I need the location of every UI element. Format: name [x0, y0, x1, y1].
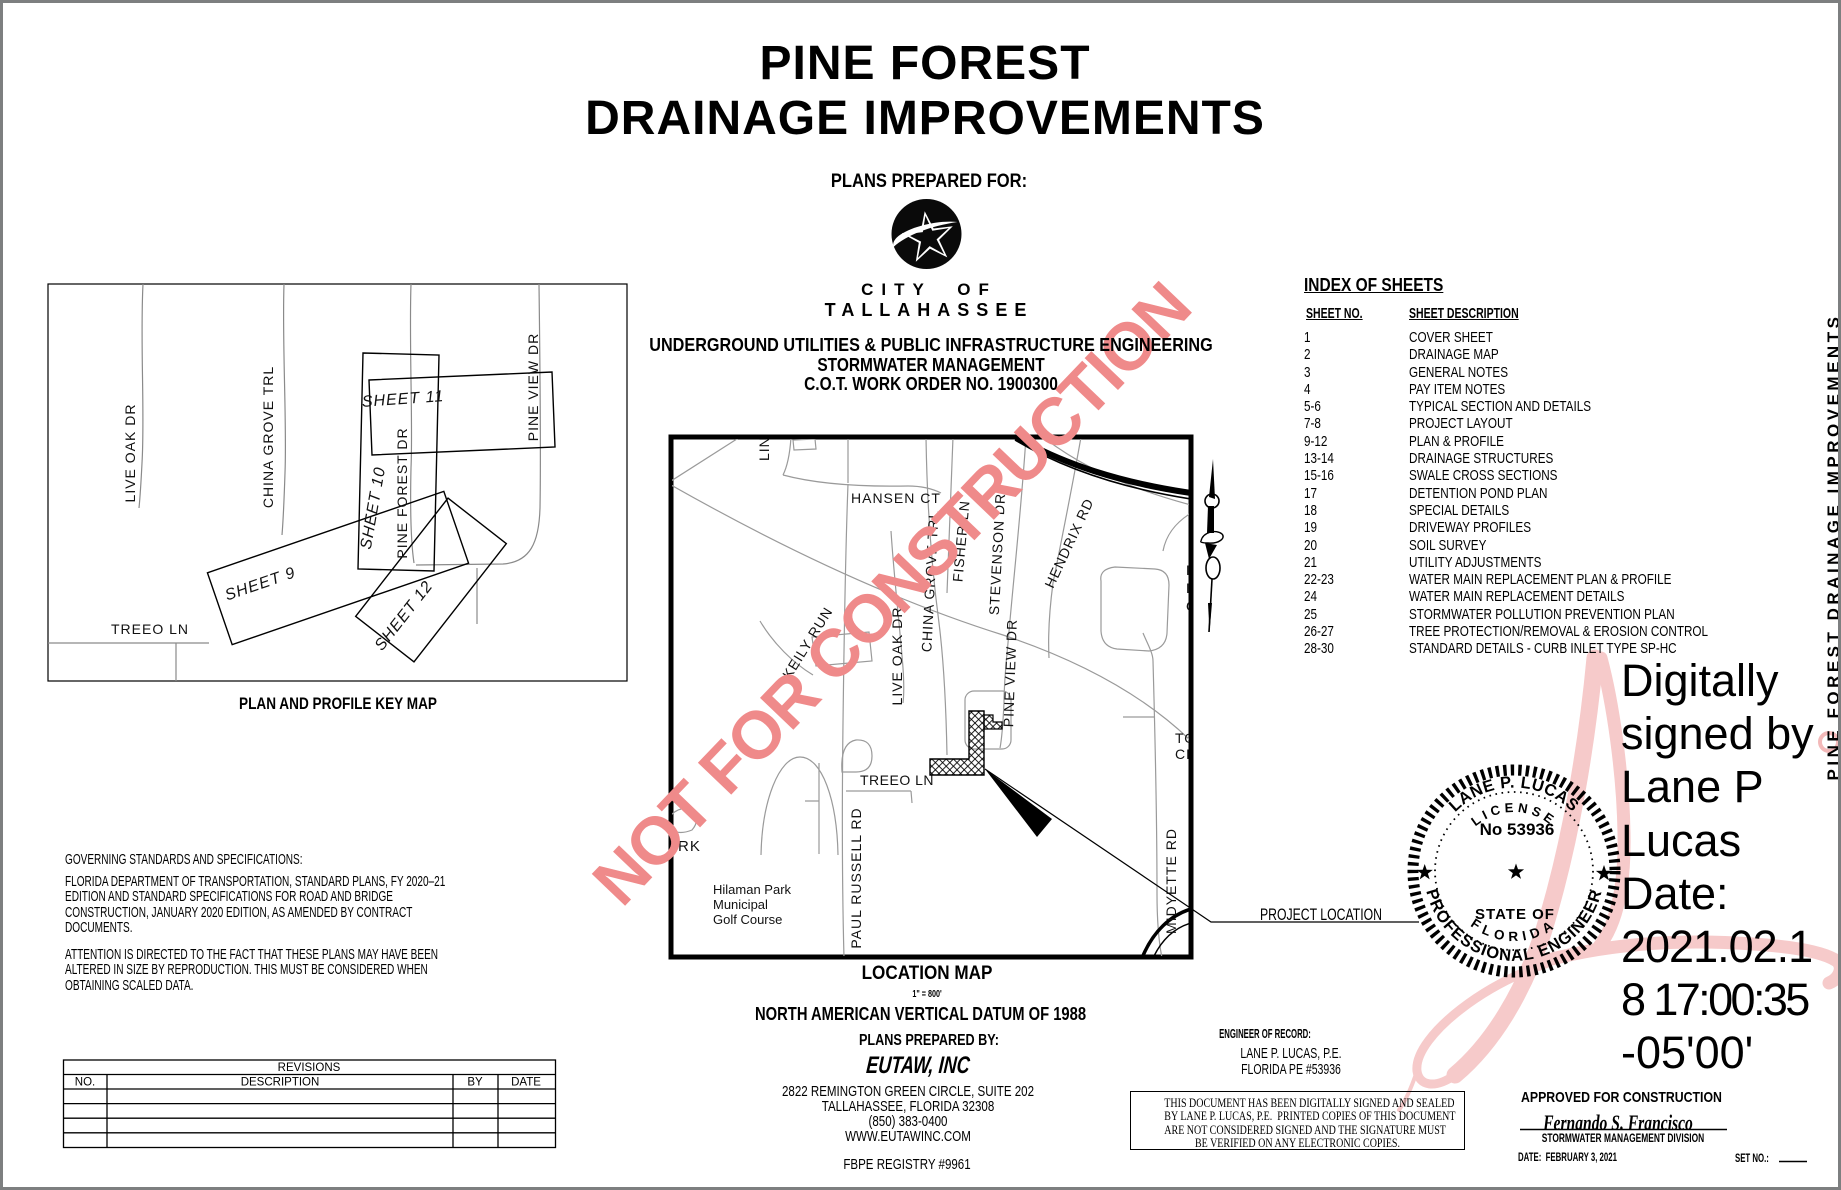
svg-text:Hilaman Park: Hilaman Park [713, 882, 792, 897]
svg-text:MIDYETTE RD: MIDYETTE RD [1163, 828, 1179, 934]
svg-text:PAUL RUSSELL RD: PAUL RUSSELL RD [848, 807, 864, 948]
svg-text:DATE: DATE [511, 1077, 541, 1089]
svg-text:BY: BY [467, 1077, 483, 1089]
svg-text:LIVE OAK DR: LIVE OAK DR [122, 404, 138, 503]
svg-text:No 53936: No 53936 [1480, 820, 1555, 839]
svg-text:REVISIONS: REVISIONS [278, 1062, 341, 1074]
svg-text:SHEET 11: SHEET 11 [361, 388, 444, 411]
svg-text:Golf Course: Golf Course [713, 912, 782, 927]
svg-text:CH: CH [1175, 746, 1197, 762]
svg-text:TREEO LN: TREEO LN [860, 772, 934, 788]
svg-text:SHEET 12: SHEET 12 [372, 578, 437, 654]
svg-text:CHINA GROVE TRL: CHINA GROVE TRL [260, 366, 276, 508]
svg-text:SHEET 9: SHEET 9 [223, 564, 298, 604]
svg-text:PINE VIEW DR: PINE VIEW DR [525, 333, 541, 441]
svg-text:PINE FOREST DR: PINE FOREST DR [394, 427, 410, 558]
svg-text:SHEET 10: SHEET 10 [358, 465, 389, 550]
svg-text:TREEO LN: TREEO LN [111, 621, 189, 637]
svg-text:LIN: LIN [756, 436, 772, 461]
svg-text:PINE VIEW DR: PINE VIEW DR [1000, 619, 1020, 728]
svg-text:HENDRIX RD: HENDRIX RD [1041, 496, 1097, 591]
svg-text:NO.: NO. [75, 1077, 95, 1089]
svg-text:DESCRIPTION: DESCRIPTION [241, 1077, 320, 1089]
svg-text:Municipal: Municipal [713, 897, 768, 912]
svg-text:STATE OF: STATE OF [1475, 906, 1555, 923]
